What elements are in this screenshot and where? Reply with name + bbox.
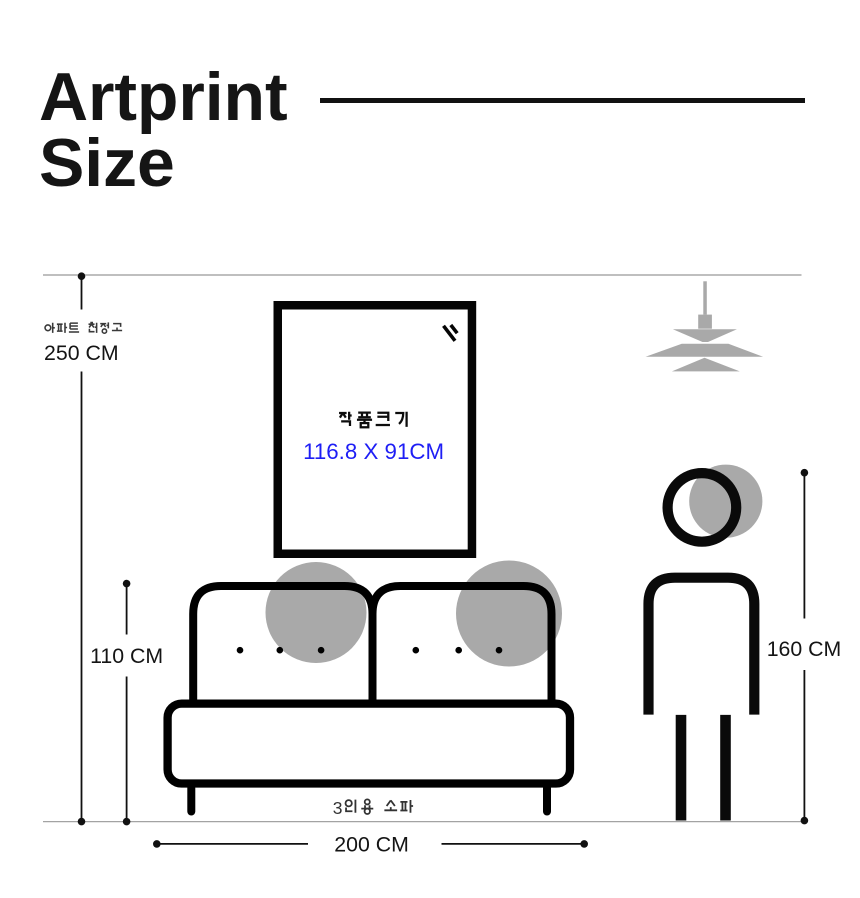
svg-text:250 CM: 250 CM [44,341,119,365]
svg-text:3: 3 [333,798,343,818]
svg-text:200 CM: 200 CM [334,833,409,857]
svg-text:116.8 X 91CM: 116.8 X 91CM [303,439,444,464]
svg-text:110 CM: 110 CM [90,644,163,668]
svg-text:160 CM: 160 CM [767,637,842,661]
